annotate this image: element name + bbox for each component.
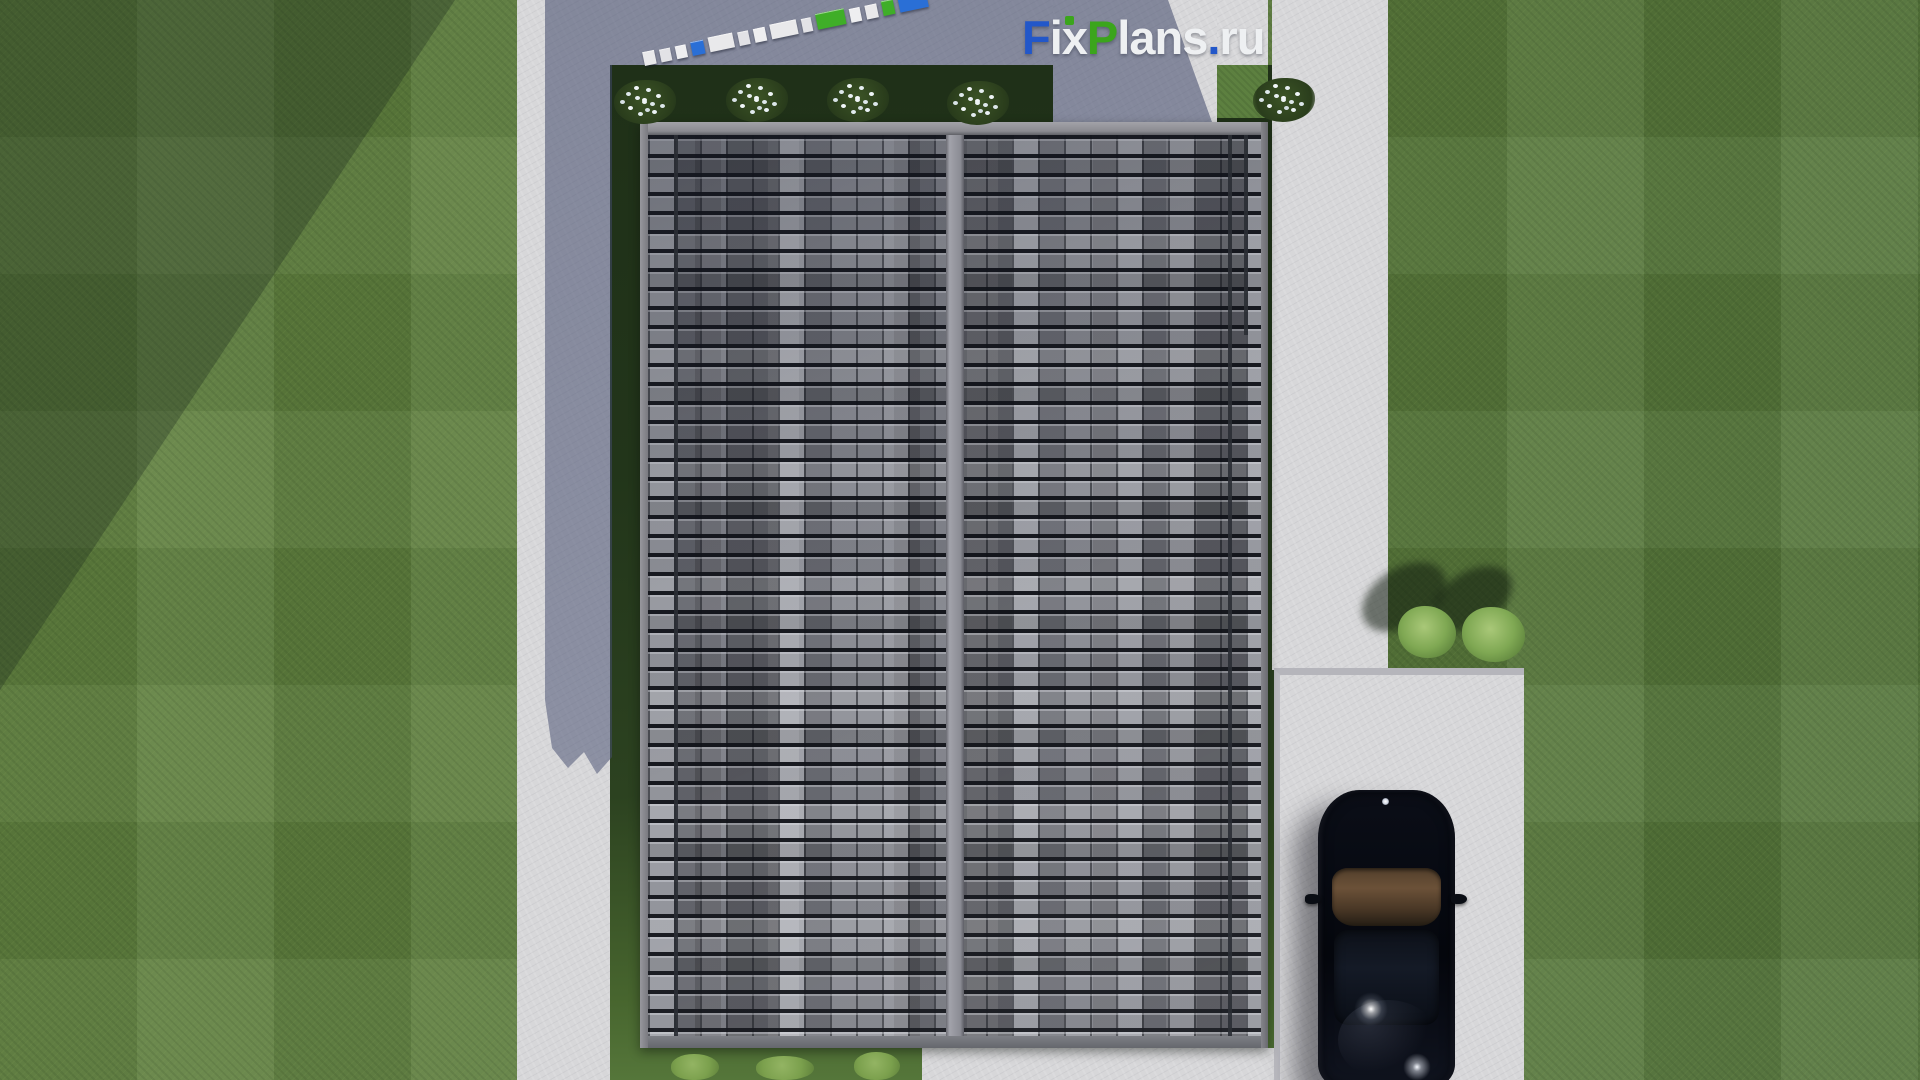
logo-letter: P: [1087, 14, 1117, 62]
roof-seam-right: [1228, 135, 1232, 1036]
roof-fascia-right: [1261, 122, 1268, 1048]
logo-letter: r: [1219, 14, 1236, 62]
logo-letter: F: [1022, 14, 1050, 62]
logo-letter: .: [1207, 14, 1219, 62]
white-flowers: [642, 100, 647, 104]
watermark-logo: FixPlans.ru: [1022, 14, 1264, 62]
bottom-pavement-strip: [922, 1048, 1278, 1080]
green-bush: [854, 1052, 900, 1080]
car-highlight: [1402, 1052, 1432, 1080]
roof-seam-right-short: [1244, 135, 1248, 335]
garden-block: [753, 27, 767, 43]
garden-block: [881, 0, 896, 16]
garden-block: [849, 7, 863, 23]
garden-block: [659, 48, 672, 63]
roof-ridge: [946, 122, 964, 1048]
logo-letter: l: [1117, 14, 1129, 62]
car-mirror-right: [1451, 894, 1467, 904]
white-flowers: [855, 98, 860, 102]
garden-block: [865, 3, 879, 19]
garden-block: [800, 17, 813, 33]
green-bush: [1462, 607, 1525, 662]
white-flowers: [975, 101, 980, 105]
left-walkway: [517, 0, 610, 1080]
car-highlight: [1354, 992, 1388, 1026]
logo-letter: i: [1050, 14, 1062, 62]
black-car: [1318, 790, 1455, 1080]
green-bush: [756, 1056, 814, 1080]
green-bush: [1398, 606, 1456, 658]
car-rear-window: [1332, 868, 1441, 926]
green-bush: [671, 1054, 719, 1080]
roof-seam-left: [674, 135, 678, 1036]
garden-block: [675, 44, 688, 59]
logo-text: FixPlans.ru: [1022, 14, 1264, 62]
roof-fascia-left: [640, 122, 648, 1048]
car-antenna: [1382, 798, 1389, 805]
logo-letter: n: [1154, 14, 1182, 62]
white-flowers: [1281, 98, 1286, 102]
garden-block: [642, 50, 657, 66]
garden-block: [737, 30, 751, 46]
roof-fascia-bottom: [640, 1036, 1268, 1048]
logo-i-dot: [1065, 16, 1074, 25]
car-mirror-left: [1305, 894, 1321, 904]
white-flowers: [754, 98, 759, 102]
logo-letter: u: [1237, 14, 1265, 62]
roof-fascia-top: [640, 122, 1268, 135]
logo-letter: a: [1129, 14, 1154, 62]
garden-block: [690, 40, 706, 56]
site-plan-render: FixPlans.ru: [0, 0, 1920, 1080]
house-roof: [640, 122, 1268, 1048]
logo-letter: s: [1182, 14, 1207, 62]
